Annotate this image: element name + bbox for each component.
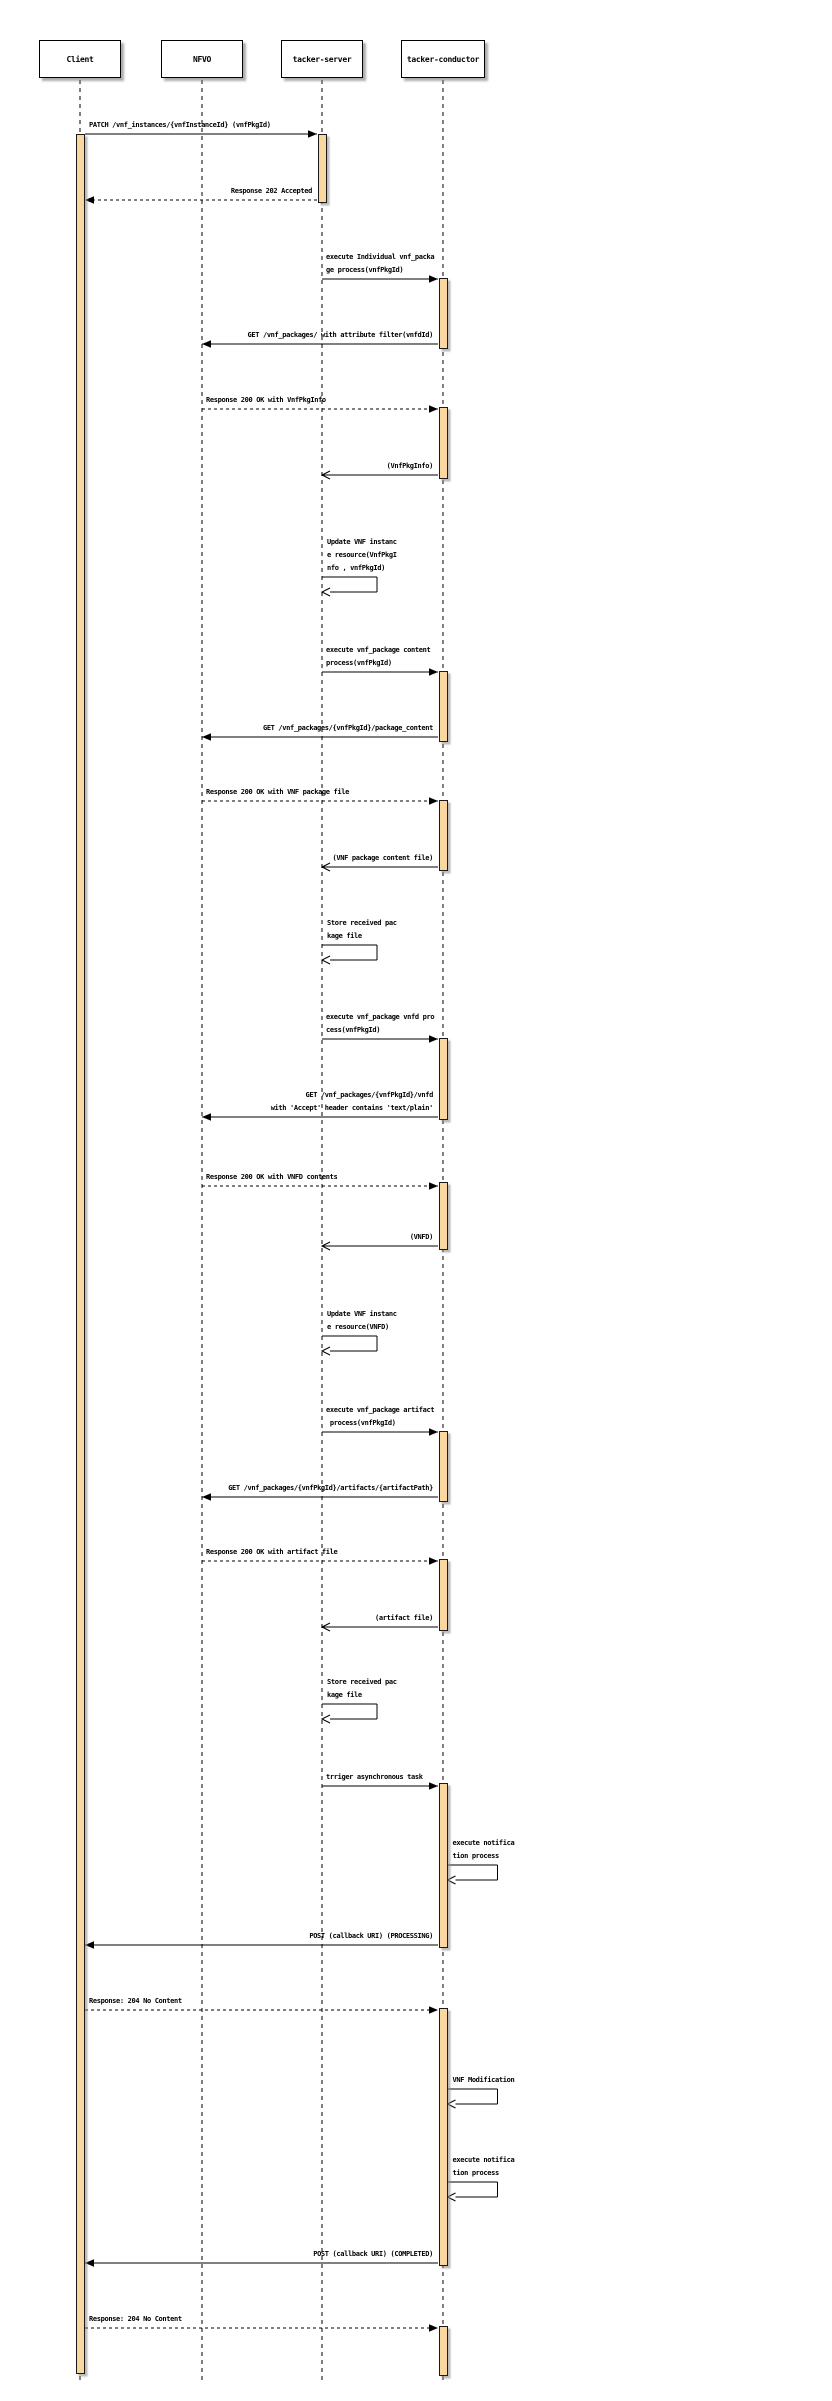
message-4-label: Response 200 OK with VnfPkgInfo [206, 394, 326, 407]
message-6-arrowhead [322, 588, 330, 596]
message-2-label: execute Individual vnf_package process(v… [326, 251, 434, 277]
message-21-arrowhead [322, 1715, 330, 1723]
message-11-arrowhead [322, 956, 330, 964]
message-17-label: execute vnf_package artifact process(vnf… [326, 1404, 434, 1430]
message-1-label: Response 202 Accepted [231, 185, 312, 198]
activation-bar-tacker-conductor [439, 1559, 448, 1631]
participant-tacker-conductor: tacker-conductor [401, 40, 485, 78]
message-23-label: execute notification process [453, 1837, 515, 1863]
message-22-arrowhead [429, 1782, 438, 1790]
participant-label: Client [66, 55, 93, 64]
message-3-arrowhead [202, 340, 211, 348]
message-22-label: trriger asynchronous task [326, 1771, 423, 1784]
message-24-arrowhead [85, 1941, 94, 1949]
message-16-label: Update VNF instance resource(VNFD) [327, 1308, 397, 1334]
message-0-label: PATCH /vnf_instances/{vnfInstanceId} (vn… [89, 119, 271, 132]
message-10-label: (VNF package content file) [333, 852, 433, 865]
message-25-label: Response: 204 No Content [89, 1995, 182, 2008]
activation-bar-tacker-conductor [439, 2008, 448, 2266]
message-8-arrowhead [202, 733, 211, 741]
participant-nfvo: NFVO [161, 40, 243, 78]
message-13-label: GET /vnf_packages/{vnfPkgId}/vnfdwith 'A… [271, 1089, 433, 1115]
activation-bar-tacker-conductor [439, 407, 448, 479]
activation-bar-tacker-conductor [439, 1038, 448, 1120]
activation-bar-client [76, 134, 85, 2374]
message-25-arrowhead [429, 2006, 438, 2014]
message-9-label: Response 200 OK with VNF package file [206, 786, 349, 799]
activation-bar-tacker-conductor [439, 278, 448, 349]
message-9-arrowhead [429, 797, 438, 805]
message-18-label: GET /vnf_packages/{vnfPkgId}/artifacts/{… [228, 1482, 433, 1495]
message-23-arrowhead [448, 1876, 456, 1884]
message-18-arrowhead [202, 1493, 211, 1501]
message-6-label: Update VNF instance resource(VnfPkgInfo … [327, 536, 397, 575]
message-29-label: Response: 204 No Content [89, 2313, 182, 2326]
message-28-arrowhead [85, 2259, 94, 2267]
message-5-label: (VnfPkgInfo) [387, 460, 433, 473]
sequence-diagram: Client NFVO tacker-server tacker-conduct… [0, 0, 832, 2401]
message-3-label: GET /vnf_packages/ with attribute filter… [248, 329, 434, 342]
activation-bar-tacker-conductor [439, 2326, 448, 2376]
message-14-label: Response 200 OK with VNFD contents [206, 1171, 337, 1184]
participant-label: tacker-conductor [407, 55, 479, 64]
message-1-arrowhead [85, 196, 94, 204]
message-26-label: VNF Modification [453, 2074, 515, 2087]
participant-tacker-server: tacker-server [281, 40, 363, 78]
activation-bar-tacker-conductor [439, 1182, 448, 1250]
message-0-arrowhead [308, 130, 317, 138]
message-15-label: (VNFD) [410, 1231, 433, 1244]
message-8-label: GET /vnf_packages/{vnfPkgId}/package_con… [263, 722, 433, 735]
message-21-label: Store received package file [327, 1676, 397, 1702]
participant-client: Client [39, 40, 121, 78]
participant-label: NFVO [193, 55, 211, 64]
activation-bar-tacker-conductor [439, 800, 448, 871]
message-7-arrowhead [429, 668, 438, 676]
message-28-label: POST (callback URI) (COMPLETED) [313, 2248, 433, 2261]
message-29-arrowhead [429, 2324, 438, 2332]
message-20-label: (artifact file) [375, 1612, 433, 1625]
message-11-label: Store received package file [327, 917, 397, 943]
activation-bar-tacker-conductor [439, 1431, 448, 1502]
activation-bar-tacker-server [318, 134, 327, 203]
activation-bar-tacker-conductor [439, 671, 448, 742]
message-24-label: POST (callback URI) (PROCESSING) [309, 1930, 433, 1943]
message-4-arrowhead [429, 405, 438, 413]
message-13-arrowhead [202, 1113, 211, 1121]
message-19-label: Response 200 OK with artifact file [206, 1546, 337, 1559]
activation-bar-tacker-conductor [439, 1783, 448, 1948]
message-27-label: execute notification process [453, 2154, 515, 2180]
message-19-arrowhead [429, 1557, 438, 1565]
message-14-arrowhead [429, 1182, 438, 1190]
message-12-label: execute vnf_package vnfd process(vnfPkgI… [326, 1011, 434, 1037]
message-26-arrowhead [448, 2100, 456, 2108]
participant-label: tacker-server [293, 55, 352, 64]
message-27-arrowhead [448, 2193, 456, 2201]
message-7-label: execute vnf_package contentprocess(vnfPk… [326, 644, 430, 670]
message-16-arrowhead [322, 1347, 330, 1355]
diagram-wires [0, 0, 832, 2401]
